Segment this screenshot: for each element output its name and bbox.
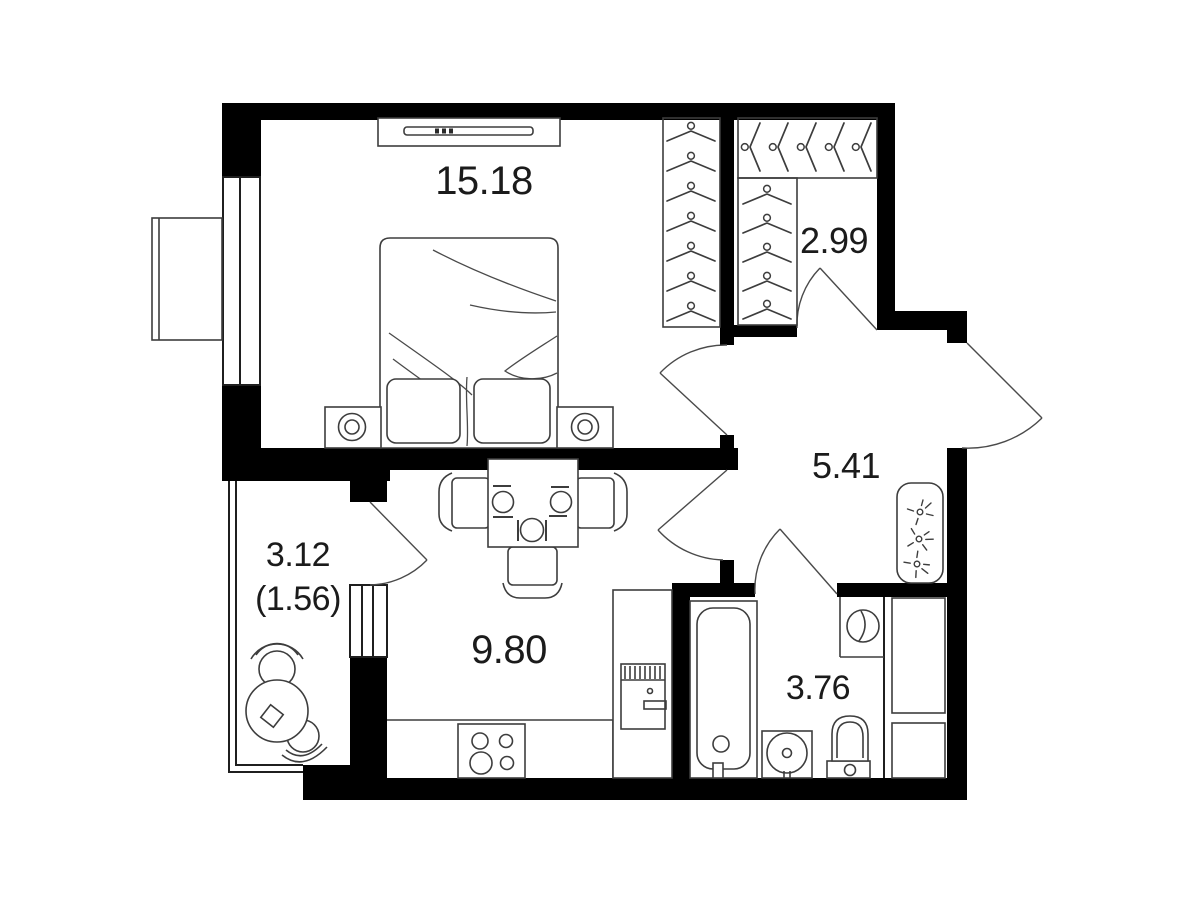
plate xyxy=(521,519,544,542)
bathtub xyxy=(690,601,757,778)
hook-icon xyxy=(903,550,932,579)
bathroom: 3.76 xyxy=(690,597,884,778)
exterior-ac-basket xyxy=(152,218,222,340)
dining-chair-right xyxy=(576,473,627,531)
hanger-icon xyxy=(667,302,715,321)
wardrobe-door-arc xyxy=(797,268,877,330)
sink xyxy=(762,731,812,778)
balcony: 3.12 (1.56) xyxy=(246,536,341,762)
wardrobe-top-row xyxy=(738,118,877,178)
wall-door-stub-upper xyxy=(720,435,734,448)
wall-bathroom-top-left xyxy=(672,583,755,597)
wall-bedroom-south-left xyxy=(222,448,390,481)
wall-right-lower xyxy=(947,448,967,800)
nightstand-left xyxy=(325,407,381,448)
hanger-icon xyxy=(743,214,791,233)
bedroom-door-arc xyxy=(660,345,727,435)
hall-cabinet-upper xyxy=(892,598,945,713)
wall-bedroom-closet-divider xyxy=(720,103,734,345)
wall-kitchen-balcony-lower xyxy=(350,657,387,778)
plate xyxy=(493,492,514,513)
room-label-balcony-reduced: (1.56) xyxy=(255,580,341,618)
floor-plan-page: 15.18 2.99 xyxy=(0,0,1200,900)
hook-icon xyxy=(901,522,936,557)
wall-bathroom-top-right xyxy=(837,583,947,597)
entry-door-arc xyxy=(962,343,1042,448)
wardrobe-room: 2.99 xyxy=(738,118,877,325)
hanger-icon xyxy=(743,300,791,319)
pillow xyxy=(387,379,460,443)
bedroom: 15.18 xyxy=(325,118,720,448)
balcony-door-arc xyxy=(370,502,427,585)
wall-kitchen-balcony-upper xyxy=(350,480,387,502)
wall-door-stub-lower xyxy=(720,560,734,583)
bedroom-wardrobe-strip xyxy=(663,118,720,327)
hanger-icon xyxy=(667,152,715,171)
hanger-icon xyxy=(852,123,871,171)
hanger-icon xyxy=(769,123,788,171)
bed xyxy=(380,238,558,448)
wall-wardrobe-right xyxy=(877,103,895,330)
kitchen-door-arc xyxy=(658,470,727,560)
wall-right-above-entry xyxy=(947,311,967,343)
room-label-bathroom: 3.76 xyxy=(786,669,850,707)
hanger-icon xyxy=(667,212,715,231)
room-label-wardrobe: 2.99 xyxy=(800,220,868,261)
room-label-bedroom: 15.18 xyxy=(435,159,533,203)
wall-wardrobe-bottom xyxy=(720,325,797,337)
bathroom-door-arc xyxy=(755,529,837,594)
hanger-icon xyxy=(667,122,715,141)
dining-chair-left xyxy=(439,473,490,531)
hanger-icon xyxy=(667,272,715,291)
wall-bottom xyxy=(303,778,967,800)
room-label-kitchen: 9.80 xyxy=(471,628,547,672)
hanger-icon xyxy=(797,123,816,171)
balcony-kitchen-window xyxy=(350,585,387,657)
floor-plan: 15.18 2.99 xyxy=(0,0,1200,900)
bedroom-window xyxy=(222,177,261,385)
fridge xyxy=(613,590,672,778)
washing-machine xyxy=(840,597,884,657)
wardrobe-side-column xyxy=(738,178,797,325)
stove xyxy=(458,724,525,778)
coat-hooks-panel xyxy=(897,483,943,583)
room-label-hallway: 5.41 xyxy=(812,445,880,486)
hanger-icon xyxy=(743,272,791,291)
hall-cabinet-lower xyxy=(892,723,945,778)
hanger-icon xyxy=(743,243,791,262)
toilet xyxy=(827,716,870,778)
wall-left-upper xyxy=(222,103,261,177)
plate xyxy=(551,492,572,513)
pillow xyxy=(474,379,550,443)
hanger-icon xyxy=(743,185,791,204)
hanger-icon xyxy=(667,242,715,261)
nightstand-right xyxy=(557,407,613,448)
hanger-icon xyxy=(825,123,844,171)
dining-table xyxy=(488,459,578,547)
dining-chair-bottom xyxy=(503,547,562,598)
tv-console xyxy=(378,118,560,146)
wall-kitchen-bathroom xyxy=(672,597,690,778)
hanger-icon xyxy=(667,182,715,201)
hanger-icon xyxy=(741,123,760,171)
hook-icon xyxy=(908,500,934,525)
room-label-balcony-total: 3.12 xyxy=(266,536,330,574)
kitchen: 9.80 xyxy=(387,459,672,778)
balcony-table xyxy=(246,680,308,742)
